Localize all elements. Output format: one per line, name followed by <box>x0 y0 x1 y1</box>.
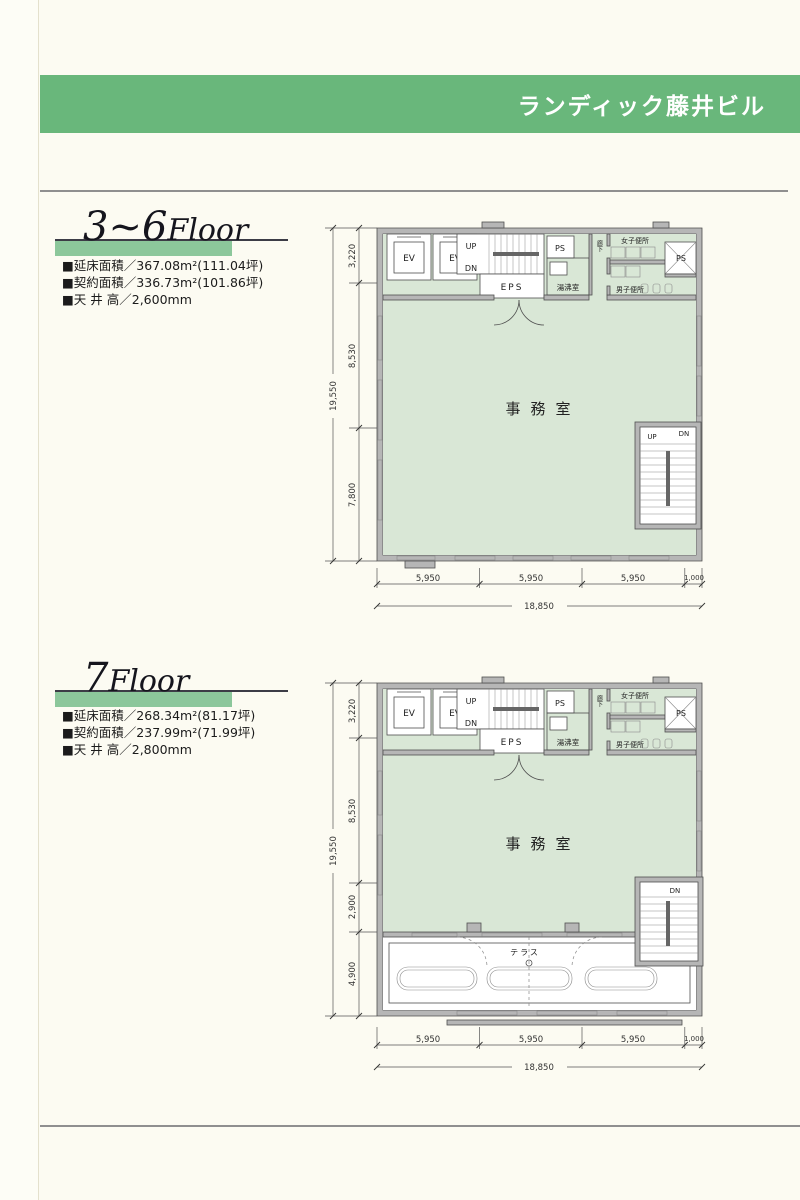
stair-dn-label: DN <box>465 264 477 273</box>
ps2-label: PS <box>676 709 686 718</box>
side-stair-dn-label: DN <box>670 887 681 895</box>
spec-floor-area: ■延床面積／367.08m²(111.04坪) <box>62 257 263 274</box>
dim-total-width: 18,850 <box>524 1063 554 1073</box>
dims-bottom: 5,950 5,950 5,950 1,000 18,850 <box>374 568 705 612</box>
dim-8530: 8,530 <box>348 799 358 823</box>
page-edge <box>0 0 39 1200</box>
dim-5950c: 5,950 <box>621 574 645 584</box>
spec-contract-area: ■契約面積／336.73m²(101.86坪) <box>62 274 263 291</box>
corridor-label: 廊下 <box>596 694 603 708</box>
stair-dn-label: DN <box>465 719 477 728</box>
floor-plan-7f: EV EV UP DN EPS <box>297 671 717 1081</box>
eps-room: EPS <box>480 274 544 298</box>
dim-2900: 2,900 <box>348 895 358 919</box>
eps-label: EPS <box>501 738 524 748</box>
stair-up-label: UP <box>466 242 477 251</box>
dims-left: 3,220 8,530 2,900 4,900 19,550 <box>325 680 377 1019</box>
kitchenette-label: 湯沸室 <box>557 737 580 747</box>
dim-5950c: 5,950 <box>621 1035 645 1045</box>
dim-7800: 7,800 <box>348 483 358 507</box>
ev1-label: EV <box>403 709 416 719</box>
mens-toilet-label: 男子便所 <box>616 285 644 294</box>
ps1-label: PS <box>555 699 565 708</box>
terrace-label: テラス <box>510 948 540 957</box>
main-staircase: UP DN <box>457 689 544 729</box>
dim-4900: 4,900 <box>348 962 358 986</box>
office-label: 事務室 <box>505 835 580 853</box>
spec-floor-area: ■延床面積／268.34m²(81.17坪) <box>62 707 255 724</box>
dim-1000: 1,000 <box>684 1035 704 1043</box>
womens-toilet-label: 女子便所 <box>621 691 649 700</box>
floor-number: 3~6 <box>83 204 167 250</box>
side-stair-up-label: UP <box>647 433 656 441</box>
office-label: 事務室 <box>505 400 580 418</box>
dim-8530: 8,530 <box>348 344 358 368</box>
side-staircase: DN <box>635 877 703 966</box>
dim-total-width: 18,850 <box>524 602 554 612</box>
dim-5950a: 5,950 <box>416 1035 440 1045</box>
floor-number: 7 <box>83 655 108 701</box>
ps2-label: PS <box>676 254 686 263</box>
spec-ceiling-height: ■天 井 高／2,800mm <box>62 741 255 758</box>
top-divider <box>40 190 788 192</box>
main-staircase: UP DN <box>457 234 544 274</box>
dim-total-height: 19,550 <box>329 381 339 411</box>
side-stair-dn-label: DN <box>679 430 690 438</box>
kitchenette-label: 湯沸室 <box>557 282 580 292</box>
brochure-page: ランディック藤井ビル 3~6Floor ■延床面積／367.08m²(111.0… <box>0 0 800 1200</box>
corridor-label: 廊下 <box>596 239 603 253</box>
dim-3220: 3,220 <box>348 699 358 723</box>
dim-5950a: 5,950 <box>416 574 440 584</box>
dim-5950b: 5,950 <box>519 1035 543 1045</box>
ps1-label: PS <box>555 244 565 253</box>
specs-7: ■延床面積／268.34m²(81.17坪) ■契約面積／237.99m²(71… <box>62 707 255 758</box>
building-title: ランディック藤井ビル <box>518 87 766 121</box>
side-staircase: UP DN <box>635 422 701 529</box>
dim-1000: 1,000 <box>684 574 704 582</box>
specs-3-6: ■延床面積／367.08m²(111.04坪) ■契約面積／336.73m²(1… <box>62 257 263 308</box>
womens-toilet-label: 女子便所 <box>621 236 649 245</box>
spec-ceiling-height: ■天 井 高／2,600mm <box>62 291 263 308</box>
spec-contract-area: ■契約面積／237.99m²(71.99坪) <box>62 724 255 741</box>
dim-5950b: 5,950 <box>519 574 543 584</box>
floor-word: Floor <box>167 213 248 248</box>
eps-room: EPS <box>480 729 544 753</box>
stair-up-label: UP <box>466 697 477 706</box>
dim-3220: 3,220 <box>348 244 358 268</box>
header-banner: ランディック藤井ビル <box>40 75 800 133</box>
dims-left: 3,220 8,530 7,800 19,550 <box>325 225 377 564</box>
dim-total-height: 19,550 <box>329 836 339 866</box>
mens-toilet-label: 男子便所 <box>616 740 644 749</box>
floor-word: Floor <box>108 664 189 699</box>
floor-plan-3-6f: EV EV UP DN EPS <box>297 216 717 616</box>
eps-label: EPS <box>501 283 524 293</box>
ev1-label: EV <box>403 254 416 264</box>
bottom-divider <box>40 1125 800 1127</box>
dims-bottom: 5,950 5,950 5,950 1,000 18,850 <box>374 1027 705 1073</box>
